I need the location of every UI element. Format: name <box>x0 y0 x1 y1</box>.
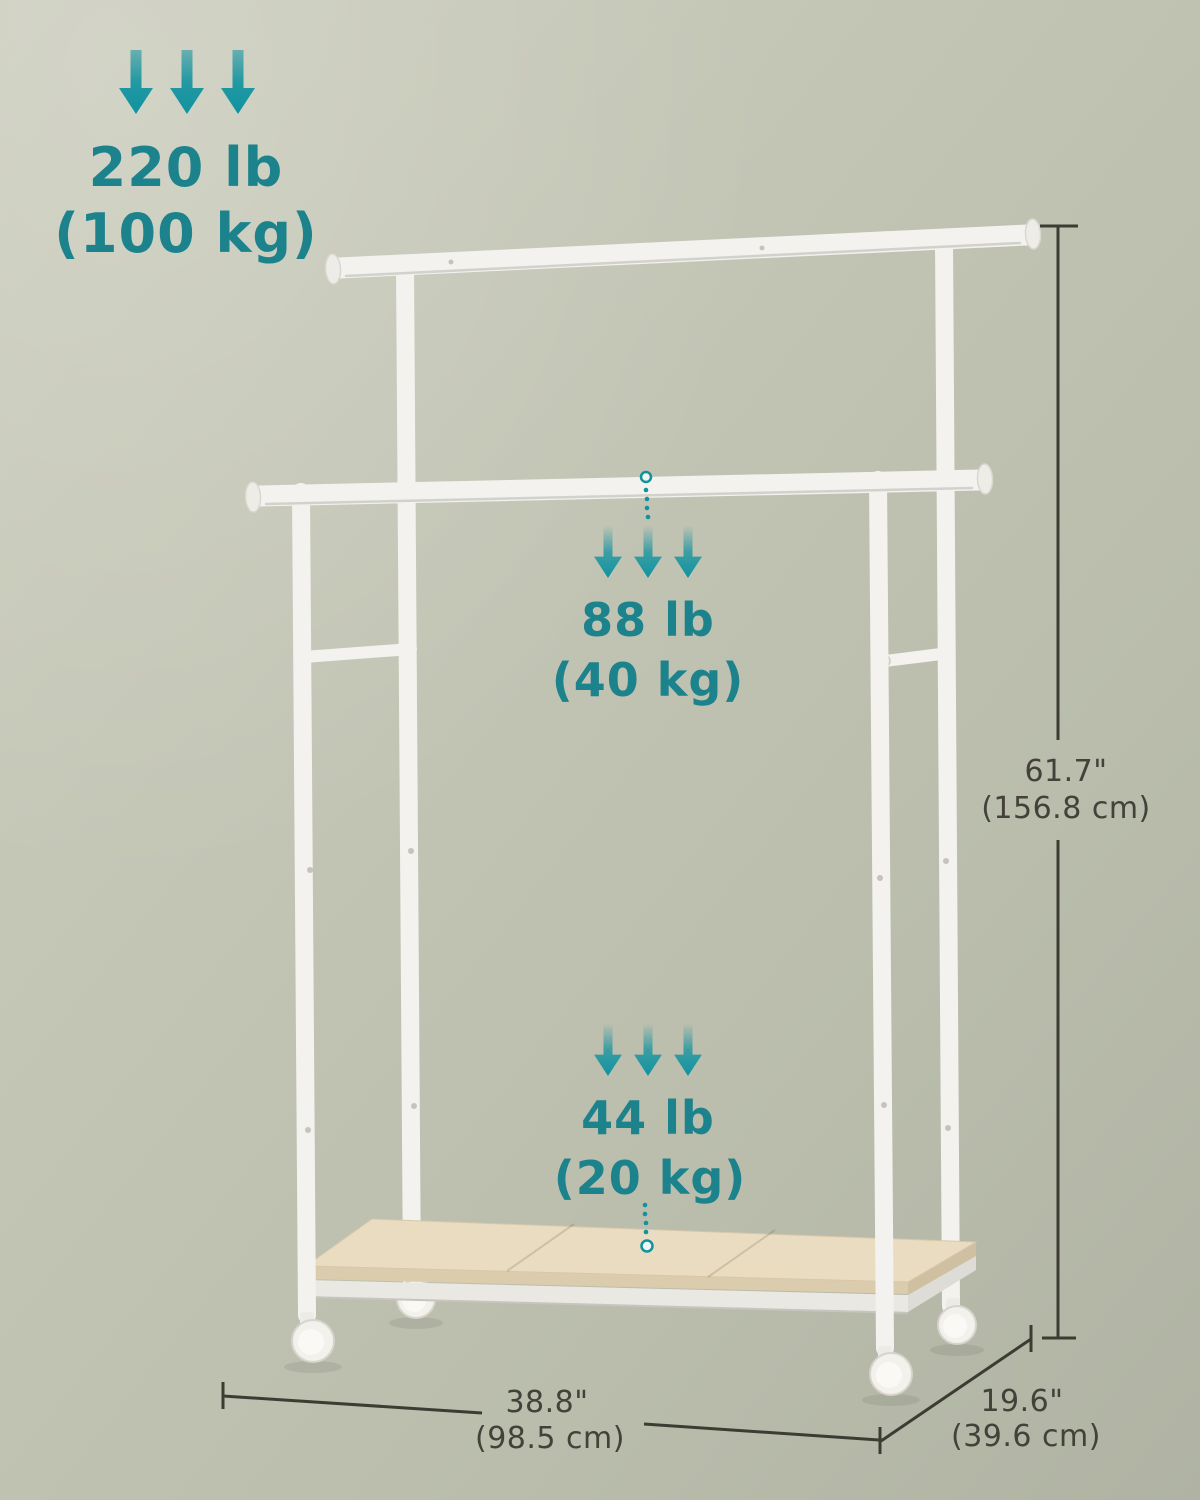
width-value-in: 38.8" <box>505 1385 588 1420</box>
height-value-cm: (156.8 cm) <box>981 791 1151 826</box>
depth-value-cm: (39.6 cm) <box>951 1419 1101 1454</box>
back-right-leg <box>944 242 951 1306</box>
top-rod-capacity-lb: 220 lb <box>89 136 284 199</box>
front-left-leg <box>301 492 307 1315</box>
shelf-capacity-kg: (20 kg) <box>554 1151 747 1205</box>
front-right-leg <box>878 480 885 1348</box>
depth-value-in: 19.6" <box>980 1384 1063 1419</box>
down-arrows-icon <box>594 1024 702 1076</box>
width-value-cm: (98.5 cm) <box>475 1421 625 1456</box>
down-arrows-icon <box>119 50 255 114</box>
lower-rod-capacity-kg: (40 kg) <box>552 653 745 707</box>
top-rod-capacity-kg: (100 kg) <box>54 202 317 265</box>
product-infographic: 220 lb (100 kg) 88 lb (40 kg) <box>0 0 1200 1500</box>
height-value-in: 61.7" <box>1024 754 1107 789</box>
lower-rod-capacity-lb: 88 lb <box>581 593 715 647</box>
rod-end-cap <box>977 464 993 495</box>
back-left-leg <box>405 266 412 1282</box>
shelf-capacity-lb: 44 lb <box>581 1091 715 1145</box>
garment-rack-infographic: 220 lb (100 kg) 88 lb (40 kg) <box>0 0 1200 1500</box>
down-arrows-icon <box>594 526 702 578</box>
rod-end-cap <box>245 482 261 513</box>
